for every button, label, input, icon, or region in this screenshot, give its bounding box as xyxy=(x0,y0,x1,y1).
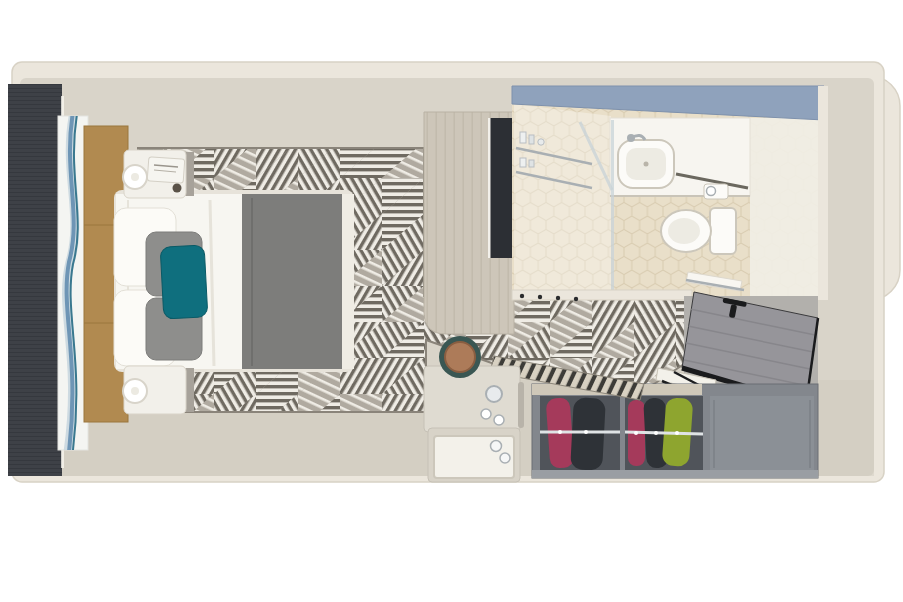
sink xyxy=(618,140,674,188)
desk-unit-top xyxy=(424,366,524,432)
glass xyxy=(500,453,510,463)
toilet xyxy=(661,208,736,254)
bathroom-right-wall xyxy=(818,86,828,300)
bathroom-right-floor xyxy=(750,118,818,296)
desk-handle xyxy=(518,382,524,428)
shower-glass-panel xyxy=(611,120,614,292)
nightstand-bottom xyxy=(123,366,194,414)
open-wardrobe xyxy=(532,384,818,478)
queen-bed xyxy=(114,190,354,372)
stateroom-render xyxy=(0,0,903,602)
bathroom-lower-wall xyxy=(512,290,692,301)
glass xyxy=(491,441,502,452)
shower-floor xyxy=(514,104,611,292)
wardrobe-base xyxy=(532,470,818,478)
feature-wall xyxy=(8,84,62,476)
garment-dark xyxy=(570,397,606,471)
foot-blanket xyxy=(242,194,342,369)
toilet-paper-holder xyxy=(704,184,728,199)
bed-edge xyxy=(342,194,354,369)
magazine xyxy=(147,157,185,183)
round-stool xyxy=(439,336,481,378)
wardrobe-compartment-3-empty xyxy=(710,396,814,472)
floorplan-svg xyxy=(0,0,903,602)
nightstand-top xyxy=(123,150,194,198)
teal-accent-pillow xyxy=(160,245,208,319)
tv-edge xyxy=(488,118,491,258)
drain xyxy=(644,162,649,167)
bathroom xyxy=(512,86,828,300)
desk-unit-bottom xyxy=(428,428,520,482)
tv-screen xyxy=(490,118,512,258)
cistern xyxy=(710,208,736,254)
bottle xyxy=(173,184,182,193)
tv-cabinet xyxy=(424,112,514,334)
